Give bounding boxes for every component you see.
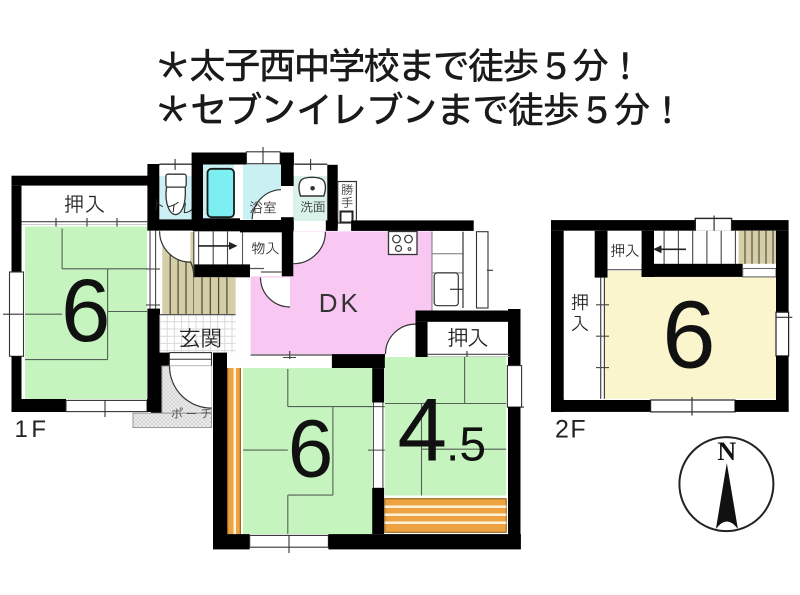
- svg-text:1F: 1F: [15, 416, 50, 443]
- svg-text:K: K: [341, 288, 359, 318]
- svg-text:D: D: [319, 288, 338, 318]
- svg-text:6: 6: [288, 404, 334, 495]
- svg-text:4: 4: [398, 379, 448, 479]
- svg-text:2F: 2F: [555, 416, 587, 444]
- svg-text:.5: .5: [446, 418, 486, 471]
- svg-text:6: 6: [61, 260, 111, 360]
- svg-text:N: N: [717, 437, 736, 466]
- svg-text:6: 6: [662, 282, 715, 389]
